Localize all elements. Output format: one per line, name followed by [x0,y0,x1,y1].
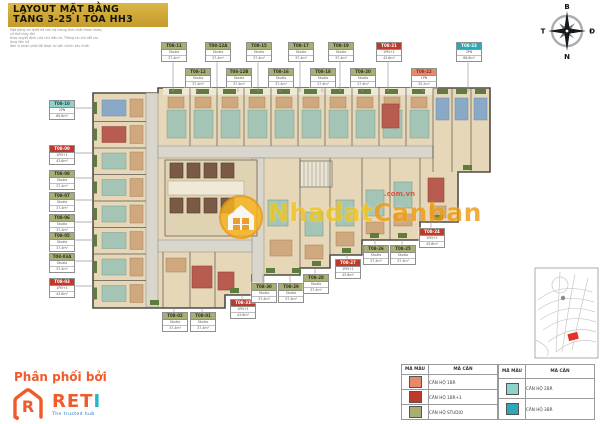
unit-label-T08-17: T08-17Studio37.4m² [288,42,314,62]
unit-area: 37.4m² [50,246,74,251]
unit-code: T08-20 [351,69,375,76]
unit-area: 37.4m² [391,259,415,264]
unit-code: T08-17 [289,43,313,50]
compass-south-label: N [564,53,570,61]
unit-label-T08-27: T08-271PN+143.6m² [335,259,361,279]
unit-label-T08-10: T08-102PN69.8m² [49,100,75,120]
unit-code: T08-06 [50,215,74,222]
unit-area: 43.6m² [231,313,255,318]
legend-color-swatch-cell [402,375,429,390]
floor-plan [73,58,490,312]
unit-code: T08-09 [50,146,74,153]
unit-area: 37.4m² [186,82,210,87]
unit-label-T08-22: T08-221PN35.2m² [411,68,437,88]
unit-code: T08-21 [377,43,401,50]
unit-area: 37.4m² [269,82,293,87]
compass-east-label: Đ [589,28,595,36]
unit-area: 43.6m² [420,242,444,247]
legend-header: MÃ MÀU [402,365,429,375]
unit-code: T08-23 [457,43,481,50]
unit-code: T08-15 [247,43,271,50]
unit-code: T08-07 [50,193,74,200]
legend-table-right: MÃ MÀUMÃ CĂNCĂN HỘ 2BRCĂN HỘ 3BR [498,364,595,420]
unit-area: 43.6m² [50,292,74,297]
legend-table-left: MÃ MÀUMÃ CĂNCĂN HỘ 1BRCĂN HỘ 1BR+1CĂN HỘ… [401,364,498,420]
unit-code: T08-03A [50,254,74,261]
unit-label-T08-15: T08-15Studio37.4m² [246,42,272,62]
unit-label-T08-03: T08-031PN+143.6m² [49,278,75,298]
unit-area: 37.4m² [163,326,187,331]
legend-unit-type-label: CĂN HỘ 3BR [526,399,595,420]
unit-area: 37.4m² [50,267,74,272]
unit-label-T08-23: T08-233PN88.6m² [456,42,482,62]
unit-code: T08-01 [191,313,215,320]
distributor-block: Phân phối bởi R RETI The trusted hub [10,370,107,421]
legend-color-swatch-cell [402,405,429,420]
legend-unit-type-label: CĂN HỘ 1BR [429,375,498,390]
unit-code: T08-12 [186,69,210,76]
compass-west-label: T [541,28,546,36]
unit-label-T08-26: T08-26Studio37.4m² [363,245,389,265]
legend-header: MÃ CĂN [429,365,498,375]
unit-code: T08-30 [252,284,276,291]
unit-area: 37.4m² [50,206,74,211]
unit-label-T08-28: T08-28Studio37.4m² [303,274,329,294]
unit-area: 88.6m² [457,56,481,61]
legend-header: MÃ CĂN [526,365,595,379]
unit-code: T08-02 [163,313,187,320]
legend-unit-type-label: CĂN HỘ 2BR [526,378,595,399]
unit-label-T08-09: T08-091PN+143.6m² [49,145,75,165]
unit-code: T08-11 [162,43,186,50]
legend-color-swatch [409,391,422,403]
unit-area: 37.4m² [289,56,313,61]
legend-color-swatch [409,376,422,388]
unit-label-T08-16: T08-16Studio37.4m² [268,68,294,88]
unit-area: 37.4m² [206,56,230,61]
unit-code: T08-18 [311,69,335,76]
unit-label-T08-30: T08-30Studio37.4m² [251,283,277,303]
unit-label-T08-02: T08-02Studio37.4m² [162,312,188,332]
mini-map [535,268,598,358]
unit-code: T08-08 [50,171,74,178]
unit-area: 37.4m² [162,56,186,61]
unit-label-T08-12: T08-12Studio37.4m² [185,68,211,88]
floorplan-poster: B N T Đ LAYOU [0,0,600,424]
legend-color-swatch [506,403,519,415]
unit-code: T08-28 [304,275,328,282]
legend-color-swatch-cell [499,378,526,399]
unit-code: T08-22 [412,69,436,76]
disclaimer-line: Mặt bằng và thiết kế căn hộ mang tính ch… [10,28,106,36]
disclaimer-line: đơn vị phân phối để được tư vấn chính xá… [10,44,106,48]
unit-area: 37.4m² [351,82,375,87]
reti-house-icon: R [10,387,46,421]
unit-label-T08-18: T08-18Studio37.4m² [310,68,336,88]
floor-plan-drawing: B N T Đ [0,0,600,424]
unit-area: 69.8m² [50,114,74,119]
title-block: LAYOUT MẶT BẰNG TẦNG 3-25 I TÒA HH3 [8,3,168,27]
svg-text:R: R [22,397,34,416]
unit-area: 37.4m² [191,326,215,331]
unit-area: 37.4m² [252,297,276,302]
unit-area: 35.2m² [412,82,436,87]
unit-label-T08-08: T08-08Studio37.4m² [49,170,75,190]
unit-label-T08-21: T08-211PN+143.6m² [376,42,402,62]
unit-label-T08-05: T08-05Studio37.4m² [49,232,75,252]
unit-code: T08-16 [269,69,293,76]
legend: MÃ MÀUMÃ CĂNCĂN HỘ 1BRCĂN HỘ 1BR+1CĂN HỘ… [401,364,595,420]
unit-label-T08-25: T08-25Studio37.4m² [390,245,416,265]
unit-area: 37.4m² [311,82,335,87]
unit-area: 37.4m² [279,297,303,302]
unit-code: T08-05 [50,233,74,240]
unit-code: T08-12B [227,69,251,76]
unit-label-T08-11: T08-11Studio37.4m² [161,42,187,62]
unit-area: 37.4m² [329,56,353,61]
unit-area: 43.6m² [336,273,360,278]
unit-label-T08-12B: T08-12BStudio37.4m² [226,68,252,88]
disclaimer-text: Mặt bằng và thiết kế căn hộ mang tính ch… [10,28,106,48]
legend-unit-type-label: CĂN HỘ STUDIO [429,405,498,420]
unit-label-T08-20: T08-20Studio37.4m² [350,68,376,88]
distributor-heading: Phân phối bởi [14,370,107,384]
unit-label-T08-01: T08-01Studio37.4m² [190,312,216,332]
stairs [300,161,332,187]
unit-label-T08-24: T08-241PN+143.6m² [419,228,445,248]
unit-area: 37.4m² [304,288,328,293]
unit-code: T08-29 [279,284,303,291]
unit-area: 37.4m² [247,56,271,61]
reti-tagline: The trusted hub [52,412,101,417]
legend-color-swatch-cell [402,390,429,405]
elevator-core [165,160,257,236]
unit-code: T08-26 [364,246,388,253]
legend-header: MÃ MÀU [499,365,526,379]
unit-label-T08-29: T08-29Studio37.4m² [278,283,304,303]
reti-logo-text: RETI [52,393,101,411]
unit-label-T08-19: T08-19Studio37.4m² [328,42,354,62]
legend-unit-type-label: CĂN HỘ 1BR+1 [429,390,498,405]
unit-area: 37.4m² [364,259,388,264]
unit-area: 37.4m² [227,82,251,87]
unit-code: T08-12A [206,43,230,50]
unit-area: 37.4m² [50,184,74,189]
unit-code: T08-03 [50,279,74,286]
page-title-line2: TẦNG 3-25 I TÒA HH3 [13,15,163,25]
unit-code: T08-10 [50,101,74,108]
legend-color-swatch [506,383,519,395]
compass-icon: B N T Đ [541,3,595,61]
unit-label-T08-03A: T08-03AStudio37.4m² [49,253,75,273]
compass-north-label: B [564,3,569,11]
map-center-marker [561,296,565,300]
unit-code: T08-27 [336,260,360,267]
unit-code: T08-25 [391,246,415,253]
legend-color-swatch-cell [499,399,526,420]
unit-area: 43.6m² [377,56,401,61]
unit-label-T08-12A: T08-12AStudio37.4m² [205,42,231,62]
unit-code: T08-24 [420,229,444,236]
unit-area: 43.6m² [50,159,74,164]
unit-code: T08-19 [329,43,353,50]
unit-label-T08-06: T08-06Studio37.4m² [49,214,75,234]
unit-label-T08-07: T08-07Studio37.4m² [49,192,75,212]
legend-color-swatch [409,406,422,418]
